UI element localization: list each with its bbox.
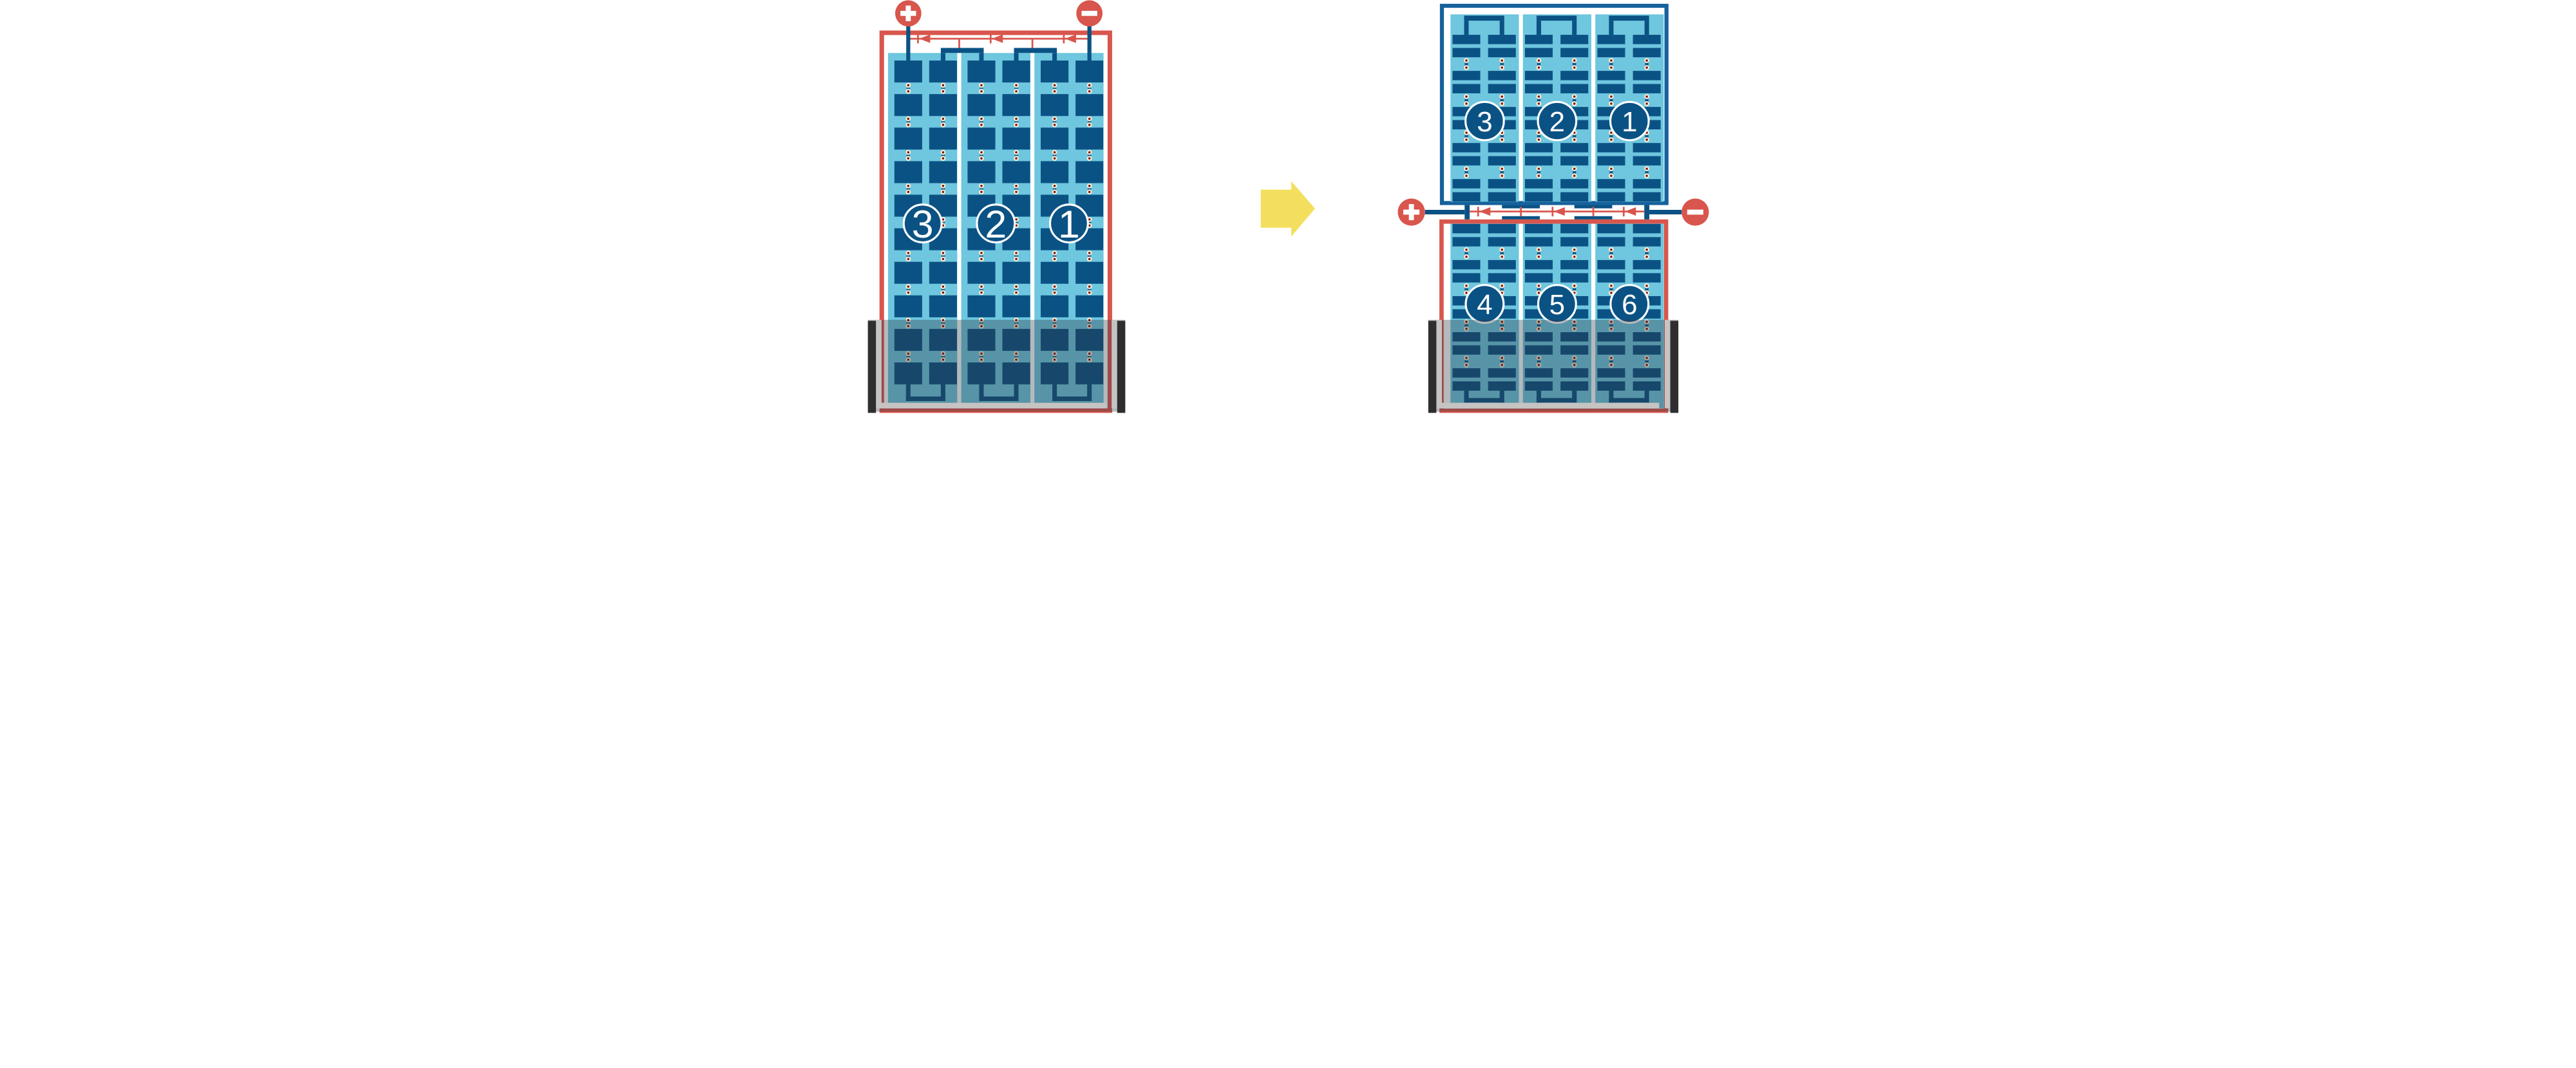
cell	[1488, 48, 1516, 57]
solder-dot-core	[1645, 59, 1648, 62]
cell	[1488, 273, 1516, 282]
cell	[1633, 143, 1661, 152]
cell	[895, 127, 922, 149]
shade-bar-right	[1117, 321, 1126, 413]
junction-post	[1644, 205, 1649, 220]
cell	[1525, 224, 1553, 233]
solder-dot-core	[942, 84, 945, 87]
cell	[1525, 192, 1553, 201]
cell	[1002, 295, 1030, 317]
cell	[1002, 61, 1030, 82]
shade-edge-left	[876, 320, 882, 409]
solder-dot-core	[1054, 191, 1056, 193]
solder-dot-core	[1538, 131, 1540, 134]
solder-dot-core	[907, 151, 910, 154]
cell	[1041, 295, 1068, 317]
solder-dot-core	[1538, 174, 1540, 177]
minus-terminal	[1076, 0, 1103, 26]
shade-fill	[1428, 320, 1678, 412]
left-panel: 321	[868, 0, 1126, 413]
solder-dot-core	[942, 258, 945, 261]
solder-dot-core	[1645, 285, 1648, 287]
solder-dot-core	[907, 84, 910, 87]
cell	[1560, 35, 1588, 44]
solder-dot-core	[1088, 151, 1091, 154]
solder-dot-core	[980, 118, 983, 120]
cell	[1597, 156, 1625, 165]
transform-arrow	[1261, 181, 1315, 236]
solder-dot-core	[1501, 256, 1503, 258]
cell	[1633, 84, 1661, 93]
cell	[1633, 224, 1661, 233]
bridge-bar	[1014, 48, 1057, 53]
solder-dot-core	[1645, 66, 1648, 69]
solder-dot-core	[907, 90, 910, 93]
interconnect-tab-bottom	[1575, 216, 1613, 220]
cell	[967, 262, 995, 284]
solder-dot-core	[1465, 285, 1468, 287]
cell	[1633, 156, 1661, 165]
solder-dot-core	[1015, 118, 1018, 120]
bridge-leg	[1572, 21, 1577, 35]
module-number: 3	[1477, 106, 1492, 138]
solder-dot-core	[907, 185, 910, 187]
cell	[895, 61, 922, 82]
solder-dot-core	[1610, 248, 1613, 251]
shade-overlay	[868, 320, 1126, 413]
solder-dot-core	[1645, 256, 1648, 258]
terminal-stem	[906, 25, 910, 61]
solder-dot-core	[1054, 252, 1056, 254]
diode-arrow	[1479, 207, 1490, 216]
solder-dot-core	[1465, 248, 1468, 251]
solder-dot-core	[1610, 292, 1613, 294]
cell	[1560, 156, 1588, 165]
cell	[1525, 84, 1553, 93]
cell	[967, 127, 995, 149]
solder-dot-core	[1465, 292, 1468, 294]
module-number-circle: 1	[1611, 102, 1649, 140]
solder-dot-core	[1015, 292, 1018, 294]
bridge-bar	[1537, 15, 1577, 21]
module-number: 1	[1058, 202, 1080, 246]
solder-dot-core	[1501, 95, 1503, 98]
shade-edge-bottom	[876, 403, 1106, 409]
cell	[1597, 260, 1625, 269]
cell	[1560, 71, 1588, 80]
cell	[1560, 260, 1588, 269]
solder-dot-core	[1538, 95, 1540, 98]
cell	[1633, 71, 1661, 80]
solder-dot-core	[980, 151, 983, 154]
cell	[1525, 179, 1553, 188]
solder-dot-core	[942, 124, 945, 126]
solder-dot-core	[1465, 66, 1468, 69]
cell	[1560, 179, 1588, 188]
minus-icon	[1082, 11, 1097, 16]
plus-terminal	[895, 0, 922, 26]
cell	[1002, 262, 1030, 284]
cell	[1525, 273, 1553, 282]
solder-dot-core	[1573, 285, 1576, 287]
solder-dot-core	[980, 252, 983, 254]
solder-dot-core	[1645, 138, 1648, 141]
solder-dot-core	[907, 191, 910, 193]
solder-dot-core	[1088, 118, 1091, 120]
plus-terminal	[1397, 198, 1425, 225]
solder-dot-core	[907, 252, 910, 254]
bridge-bar	[941, 48, 984, 53]
diode-cathode-bar	[1477, 207, 1479, 216]
minus-bar	[1082, 11, 1097, 16]
solder-dot-core	[1573, 59, 1576, 62]
cell	[1452, 224, 1480, 233]
arrow-right-icon	[1261, 181, 1315, 236]
cell	[1452, 179, 1480, 188]
cell	[1488, 192, 1516, 201]
solder-dot-core	[1610, 59, 1613, 62]
module-number-circle: 5	[1538, 285, 1576, 323]
solder-dot-core	[1501, 285, 1503, 287]
solder-dot-core	[980, 185, 983, 187]
solder-dot-core	[1610, 131, 1613, 134]
cell	[1041, 262, 1068, 284]
bridge-leg	[1464, 21, 1468, 35]
solder-dot-core	[1015, 185, 1018, 187]
bridge-leg	[1014, 53, 1019, 61]
module-number: 4	[1477, 289, 1492, 321]
cell	[1488, 143, 1516, 152]
diode-arrow	[1065, 34, 1076, 42]
solder-dot-core	[1465, 174, 1468, 177]
plus-bar-v	[1409, 204, 1414, 220]
cell	[1002, 161, 1030, 183]
diode-tick	[1032, 39, 1034, 48]
cell	[1633, 179, 1661, 188]
solder-dot-core	[1610, 256, 1613, 258]
cell	[1633, 192, 1661, 201]
cell	[1041, 61, 1068, 82]
solder-dot-core	[1610, 102, 1613, 105]
solder-dot-core	[1573, 174, 1576, 177]
solder-dot-core	[1645, 167, 1648, 170]
solder-dot-core	[1573, 102, 1576, 105]
solder-dot-core	[1054, 84, 1056, 87]
solder-dot-core	[907, 118, 910, 120]
solder-dot-core	[942, 292, 945, 294]
solder-dot-core	[1465, 59, 1468, 62]
solder-dot-core	[942, 118, 945, 120]
solder-dot-core	[1088, 185, 1091, 187]
solder-dot-core	[1645, 248, 1648, 251]
bridge-bar	[1609, 15, 1649, 21]
solder-dot-core	[1054, 258, 1056, 261]
cell	[1597, 192, 1625, 201]
cell	[1488, 71, 1516, 80]
diode-arrow	[1554, 207, 1565, 216]
solder-dot-core	[942, 252, 945, 254]
module-number: 5	[1549, 289, 1565, 321]
cell	[1452, 192, 1480, 201]
bridge-leg	[1052, 53, 1057, 61]
cell	[1075, 94, 1103, 116]
bridge-leg	[1645, 21, 1649, 35]
cell	[1597, 48, 1625, 57]
minus-bar	[1687, 210, 1703, 215]
cell	[1452, 237, 1480, 246]
cell	[1002, 94, 1030, 116]
cell	[1633, 260, 1661, 269]
cell	[1452, 143, 1480, 152]
diode-cathode-bar	[1551, 207, 1553, 216]
solder-dot-core	[1610, 66, 1613, 69]
module-number: 2	[1549, 106, 1565, 138]
diode-busbar	[908, 34, 1089, 48]
diode-cathode-bar	[917, 35, 919, 44]
solder-dot-core	[1015, 258, 1018, 261]
shade-edge-left	[1436, 320, 1442, 409]
cell	[967, 295, 995, 317]
cell	[1525, 143, 1553, 152]
bridge-leg	[1609, 21, 1613, 35]
solder-dot-core	[1538, 138, 1540, 141]
solder-dot-core	[1538, 248, 1540, 251]
cell	[1452, 273, 1480, 282]
solder-dot-core	[1465, 131, 1468, 134]
module-number: 6	[1622, 289, 1637, 321]
shade-fill	[868, 320, 1126, 412]
solder-dot-core	[1088, 90, 1091, 93]
cell	[1560, 143, 1588, 152]
terminal-bus	[1649, 210, 1681, 214]
cell	[1525, 35, 1553, 44]
cell	[1452, 84, 1480, 93]
solder-dot-core	[1501, 167, 1503, 170]
solder-dot-core	[1538, 102, 1540, 105]
cell	[929, 127, 957, 149]
solder-dot-core	[1501, 138, 1503, 141]
cell	[1560, 224, 1588, 233]
solder-dot-core	[980, 258, 983, 261]
module-number-circle: 2	[1538, 102, 1577, 140]
shade-edge-bottom	[1436, 403, 1659, 409]
bridge-leg	[1500, 21, 1504, 35]
solder-dot-core	[980, 84, 983, 87]
diode-cathode-bar	[1623, 207, 1625, 216]
module-number-circle: 6	[1611, 285, 1649, 323]
solder-dot-core	[942, 191, 945, 193]
solar-string-rewiring-figure: 321321456	[783, 0, 1793, 418]
solder-dot-core	[1088, 258, 1091, 261]
solder-dot-core	[1015, 252, 1018, 254]
cell	[1488, 35, 1516, 44]
solder-dot-core	[1015, 157, 1018, 160]
solder-dot-core	[1610, 138, 1613, 141]
solder-dot-core	[1054, 185, 1056, 187]
diode-arrow	[1625, 207, 1636, 216]
solder-dot-core	[1538, 59, 1540, 62]
solder-dot-core	[1088, 252, 1091, 254]
solder-dot-core	[1015, 285, 1018, 288]
cell	[1597, 179, 1625, 188]
solder-dot-core	[1501, 102, 1503, 105]
solder-dot-core	[1538, 167, 1540, 170]
right-panel: 321456	[1397, 6, 1709, 413]
solder-dot-core	[1015, 151, 1018, 154]
solder-dot-core	[1088, 285, 1091, 288]
cell	[1525, 48, 1553, 57]
solder-dot-core	[1088, 191, 1091, 193]
solder-dot-core	[980, 90, 983, 93]
diode-tick	[1593, 207, 1595, 216]
diode-arrow	[992, 34, 1003, 42]
solder-dot-core	[1088, 157, 1091, 160]
shade-bar-left	[1428, 321, 1437, 413]
solder-dot-core	[1610, 285, 1613, 287]
solder-dot-core	[1573, 66, 1576, 69]
solder-dot-core	[980, 292, 983, 294]
solder-dot-core	[1573, 248, 1576, 251]
cell	[1525, 260, 1553, 269]
solder-dot-core	[1015, 191, 1018, 193]
cell	[1452, 260, 1480, 269]
cell	[1041, 161, 1068, 183]
cell	[929, 61, 957, 82]
bridge-leg	[1537, 21, 1541, 35]
solder-dot-core	[1573, 256, 1576, 258]
cell	[1452, 71, 1480, 80]
cell	[1525, 156, 1553, 165]
solder-dot-core	[942, 285, 945, 288]
solder-dot-core	[1465, 138, 1468, 141]
cell	[1633, 273, 1661, 282]
solder-dot-core	[1610, 167, 1613, 170]
solder-dot-core	[1538, 292, 1540, 294]
solder-dot-core	[907, 258, 910, 261]
cell	[1002, 127, 1030, 149]
cell	[1560, 237, 1588, 246]
diode-cathode-bar	[990, 35, 992, 44]
cell	[1560, 192, 1588, 201]
cell	[967, 161, 995, 183]
cell	[929, 161, 957, 183]
solder-dot-core	[1088, 84, 1091, 87]
cell	[895, 161, 922, 183]
cell	[1488, 237, 1516, 246]
diode-arrow	[919, 34, 930, 42]
minus-icon	[1687, 210, 1703, 215]
cell	[1633, 48, 1661, 57]
solder-dot-core	[907, 157, 910, 160]
solder-dot-core	[1054, 292, 1056, 294]
solder-dot-core	[1465, 95, 1468, 98]
cell	[929, 295, 957, 317]
solder-dot-core	[1088, 124, 1091, 126]
solder-dot-core	[942, 185, 945, 187]
solder-dot-core	[1054, 118, 1056, 120]
solder-dot-core	[1538, 285, 1540, 287]
terminal-bus	[1425, 210, 1465, 214]
cell	[1633, 35, 1661, 44]
cell	[1597, 143, 1625, 152]
solder-dot-core	[980, 157, 983, 160]
solder-dot-core	[980, 124, 983, 126]
solder-dot-core	[1054, 157, 1056, 160]
cell	[1452, 35, 1480, 44]
solder-dot-core	[1088, 292, 1091, 294]
cell	[895, 262, 922, 284]
bridge-leg	[941, 53, 945, 61]
solder-dot-core	[942, 157, 945, 160]
junction-post	[1464, 205, 1470, 220]
cell	[1560, 273, 1588, 282]
cell	[895, 94, 922, 116]
cell	[1452, 156, 1480, 165]
cell	[967, 61, 995, 82]
cell	[1560, 84, 1588, 93]
shade-edge-right	[1112, 320, 1117, 409]
solder-dot-core	[1573, 167, 1576, 170]
cell	[1597, 224, 1625, 233]
diode-cathode-bar	[1063, 35, 1065, 44]
solder-dot-core	[1501, 248, 1503, 251]
solder-dot-core	[907, 285, 910, 288]
solder-dot-core	[1645, 95, 1648, 98]
shade-overlay	[1428, 320, 1678, 413]
solder-dot-core	[1015, 90, 1018, 93]
solder-dot-core	[1501, 59, 1503, 62]
cell	[1041, 94, 1068, 116]
plus-bar-v	[905, 6, 911, 21]
solder-dot-core	[1645, 174, 1648, 177]
module-number-circle: 4	[1466, 285, 1504, 323]
solder-dot-core	[980, 285, 983, 288]
cell	[929, 94, 957, 116]
cell	[1488, 224, 1516, 233]
solder-dot-core	[1015, 84, 1018, 87]
solder-dot-core	[1610, 95, 1613, 98]
bridge-leg	[979, 53, 983, 61]
shade-bar-right	[1671, 321, 1679, 413]
cell	[895, 295, 922, 317]
cell	[1075, 61, 1103, 82]
solder-dot-core	[1054, 285, 1056, 288]
cell	[1560, 48, 1588, 57]
cell	[1597, 273, 1625, 282]
cell	[1075, 262, 1103, 284]
solder-dot-core	[1645, 102, 1648, 105]
solder-dot-core	[1501, 174, 1503, 177]
module-number-circle: 3	[1466, 102, 1504, 140]
cell	[1488, 179, 1516, 188]
solder-dot-core	[1465, 102, 1468, 105]
module-number: 1	[1622, 106, 1637, 138]
cell	[929, 262, 957, 284]
solder-dot-core	[1054, 151, 1056, 154]
shade-edge-right	[1665, 320, 1671, 409]
solder-dot-core	[907, 292, 910, 294]
diode-tick	[958, 39, 960, 48]
solder-dot-core	[980, 191, 983, 193]
cell	[967, 94, 995, 116]
solder-dot-core	[942, 151, 945, 154]
solder-dot-core	[1465, 167, 1468, 170]
cell	[1525, 71, 1553, 80]
minus-terminal	[1681, 198, 1709, 225]
solder-dot-core	[1054, 90, 1056, 93]
module-number: 2	[985, 202, 1007, 246]
diode-tick	[1520, 207, 1522, 216]
